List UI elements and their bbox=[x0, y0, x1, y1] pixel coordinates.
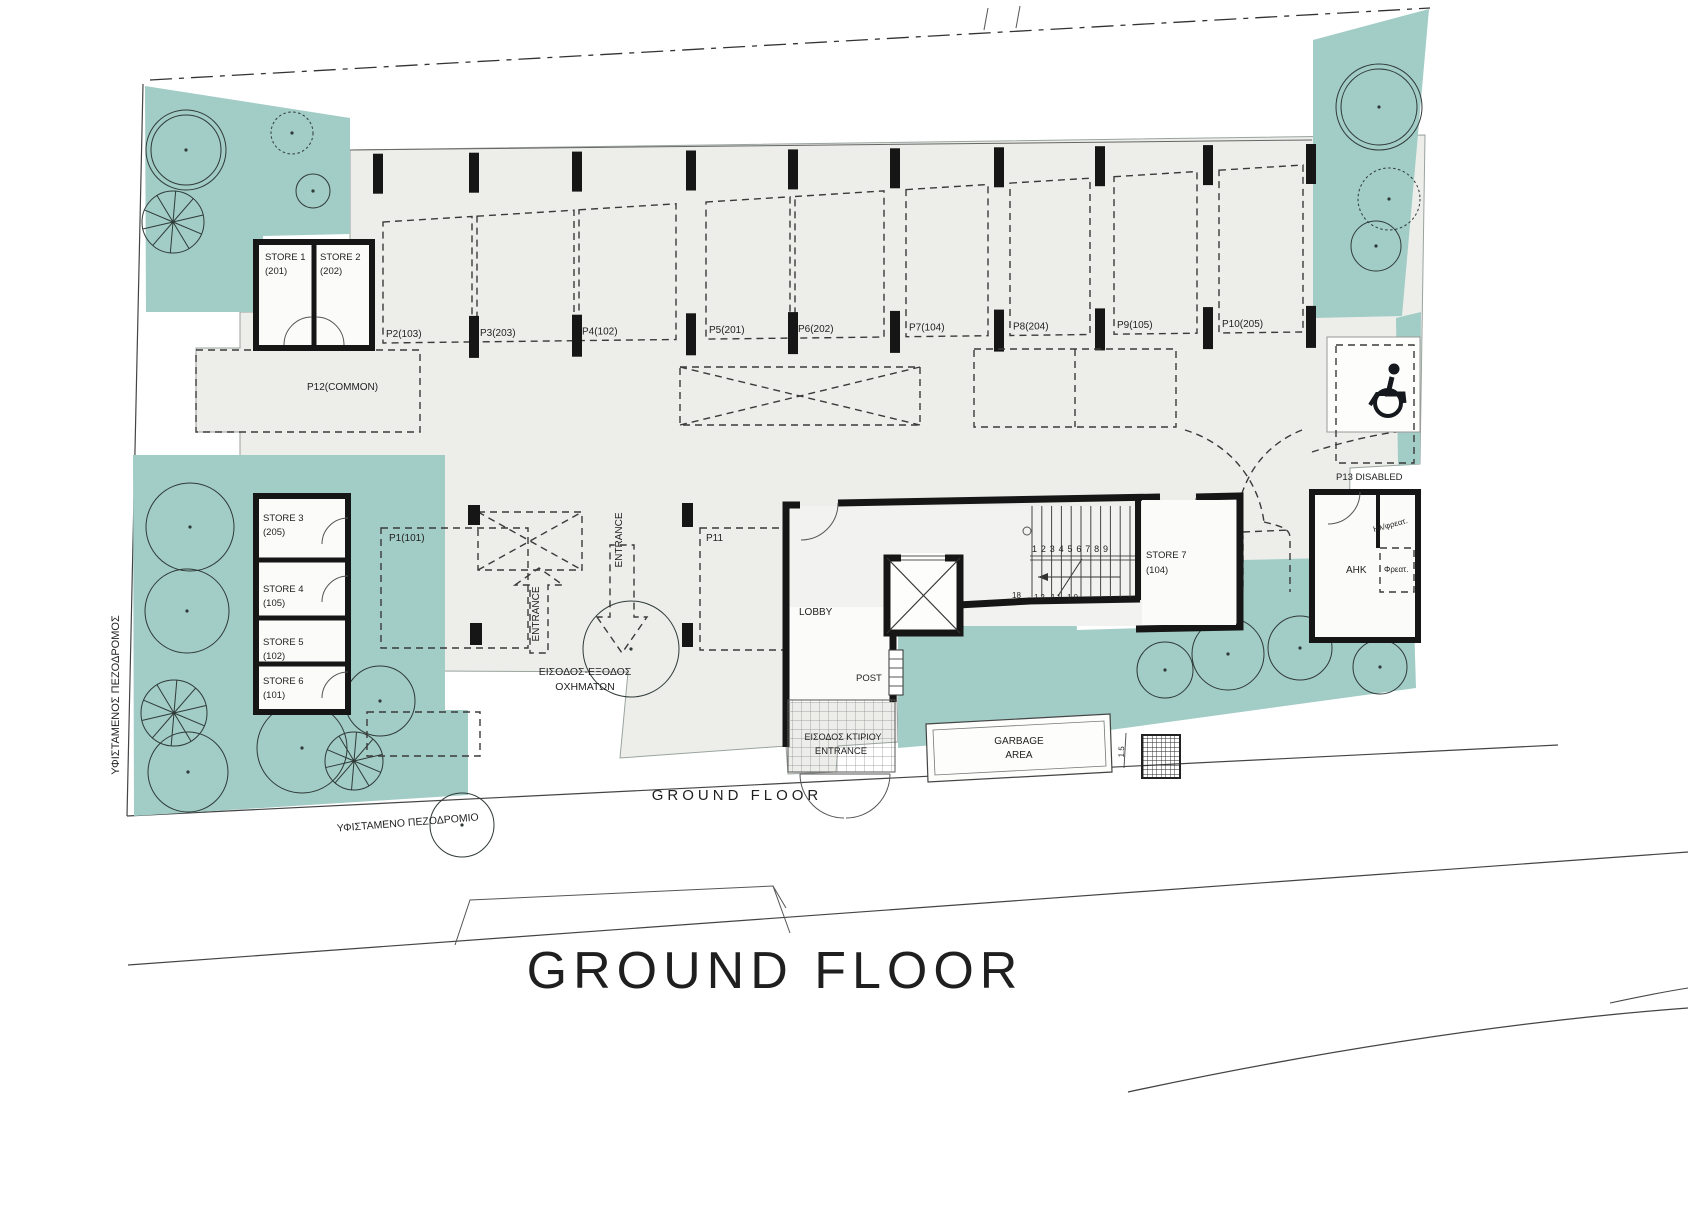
label-entrance-vehicle_line1: ΕΙΣΟΔΟΣ-ΕΞΟΔΟΣ bbox=[539, 666, 632, 678]
label-parking-7-label: P8(204) bbox=[1013, 321, 1049, 332]
label-core-lobby: LOBBY bbox=[799, 607, 833, 618]
door-arc bbox=[846, 774, 890, 818]
column bbox=[686, 313, 696, 355]
label-stores-5-name: STORE 6 bbox=[263, 676, 303, 687]
survey-tick bbox=[984, 8, 988, 30]
column bbox=[788, 149, 798, 189]
column bbox=[788, 312, 798, 354]
label-stores-3-num: (105) bbox=[263, 598, 285, 609]
label-parking-3-label: P4(102) bbox=[582, 327, 618, 338]
sidewalk-vertical-label: ΥΦΙΣΤΑΜΕΝΟΣ ΠΕΖΟΔΡΟΜΟΣ bbox=[110, 615, 122, 775]
ground-floor-plan-drawing: STORE 1(201)STORE 2(202)STORE 3(205)STOR… bbox=[0, 0, 1688, 1226]
post-boxes bbox=[889, 650, 903, 695]
column bbox=[994, 310, 1004, 352]
label-parking-4-label: P5(201) bbox=[709, 325, 745, 336]
label-parking-11-label: P12(COMMON) bbox=[307, 382, 378, 393]
column bbox=[682, 623, 693, 647]
label-rooms-disabled_label: P13 DISABLED bbox=[1336, 472, 1403, 483]
road-curve bbox=[1128, 1008, 1688, 1092]
label-parking-0-label: P1(101) bbox=[389, 533, 425, 544]
label-parking-2-label: P3(203) bbox=[480, 328, 516, 339]
road-crossing-bump bbox=[455, 886, 790, 945]
survey-tick bbox=[1016, 6, 1020, 28]
label-rooms-ahk: AHK bbox=[1346, 565, 1367, 576]
label-stores-1-num: (202) bbox=[320, 266, 342, 277]
column bbox=[1095, 308, 1105, 350]
column bbox=[469, 316, 479, 358]
column bbox=[1306, 306, 1316, 348]
label-stores-1-name: STORE 2 bbox=[320, 252, 360, 263]
label-stores-2-name: STORE 3 bbox=[263, 513, 303, 524]
column bbox=[1095, 146, 1105, 186]
column bbox=[470, 623, 482, 645]
label-core-stair_numbers_top: 1 2 3 4 5 6 7 8 9 bbox=[1032, 544, 1108, 554]
label-entrance-vehicle_line2: ΟΧΗΜΑΤΩΝ bbox=[555, 681, 614, 693]
column bbox=[686, 151, 696, 191]
label-rooms-garbage_line2: AREA bbox=[1005, 750, 1033, 761]
label-parking-8-label: P9(105) bbox=[1117, 320, 1153, 331]
column bbox=[682, 503, 693, 527]
column bbox=[468, 505, 480, 525]
label-entrance-arrow_in: ENTRANCE bbox=[531, 586, 542, 641]
label-parking-1-label: P2(103) bbox=[386, 329, 422, 340]
label-stores-4-num: (102) bbox=[263, 651, 285, 662]
label-rooms-garbage_dim: 1.5 bbox=[1117, 746, 1127, 758]
column bbox=[1203, 145, 1213, 185]
column bbox=[1306, 144, 1316, 184]
label-core-post: POST bbox=[856, 673, 882, 684]
label-parking-9-label: P10(205) bbox=[1222, 319, 1263, 330]
label-core-stair_number_left: 18 bbox=[1012, 591, 1021, 600]
vestibule bbox=[789, 607, 893, 702]
column bbox=[890, 148, 900, 188]
road-curve-short bbox=[1610, 988, 1688, 1003]
garbage-lift bbox=[1142, 735, 1180, 778]
column bbox=[572, 315, 582, 357]
label-rooms-garbage_line1: GARBAGE bbox=[994, 736, 1044, 747]
sidewalk-bottom-label: ΥΦΙΣΤΑΜΕΝΟ ΠΕΖΟΔΡΟΜΙΟ bbox=[336, 811, 479, 834]
label-entrance-building_en: ENTRANCE bbox=[815, 746, 867, 757]
column bbox=[890, 311, 900, 353]
label-stores-5-num: (101) bbox=[263, 690, 285, 701]
label-stores-6-name: STORE 7 bbox=[1146, 550, 1186, 561]
label-entrance-building_gr: ΕΙΣΟΔΟΣ ΚΤΙΡΙΟΥ bbox=[805, 732, 882, 742]
disabled-bay-pad bbox=[1327, 337, 1420, 432]
label-stores-6-num: (104) bbox=[1146, 565, 1168, 576]
label-stores-3-name: STORE 4 bbox=[263, 584, 303, 595]
page-title: GROUND FLOOR bbox=[527, 942, 1024, 1000]
elevator-shaft bbox=[887, 553, 960, 633]
label-parking-10-label: P11 bbox=[706, 533, 723, 544]
label-entrance-arrow_out: ENTRANCE bbox=[614, 512, 625, 567]
label-rooms-shaft: Φρεατ. bbox=[1384, 565, 1409, 574]
floor-plan-page: STORE 1(201)STORE 2(202)STORE 3(205)STOR… bbox=[0, 0, 1688, 1226]
label-stores-0-name: STORE 1 bbox=[265, 252, 305, 263]
column bbox=[994, 147, 1004, 187]
label-stores-4-name: STORE 5 bbox=[263, 637, 303, 648]
label-parking-5-label: P6(202) bbox=[798, 324, 834, 335]
store-7-room bbox=[1142, 500, 1236, 625]
property-line-dashdot bbox=[150, 8, 1430, 80]
label-stores-2-num: (205) bbox=[263, 527, 285, 538]
column bbox=[469, 153, 479, 193]
floor-label: GROUND FLOOR bbox=[652, 787, 823, 804]
label-stores-0-num: (201) bbox=[265, 266, 287, 277]
column bbox=[373, 154, 383, 194]
column bbox=[572, 152, 582, 192]
column bbox=[1203, 307, 1213, 349]
label-parking-6-label: P7(104) bbox=[909, 323, 945, 334]
